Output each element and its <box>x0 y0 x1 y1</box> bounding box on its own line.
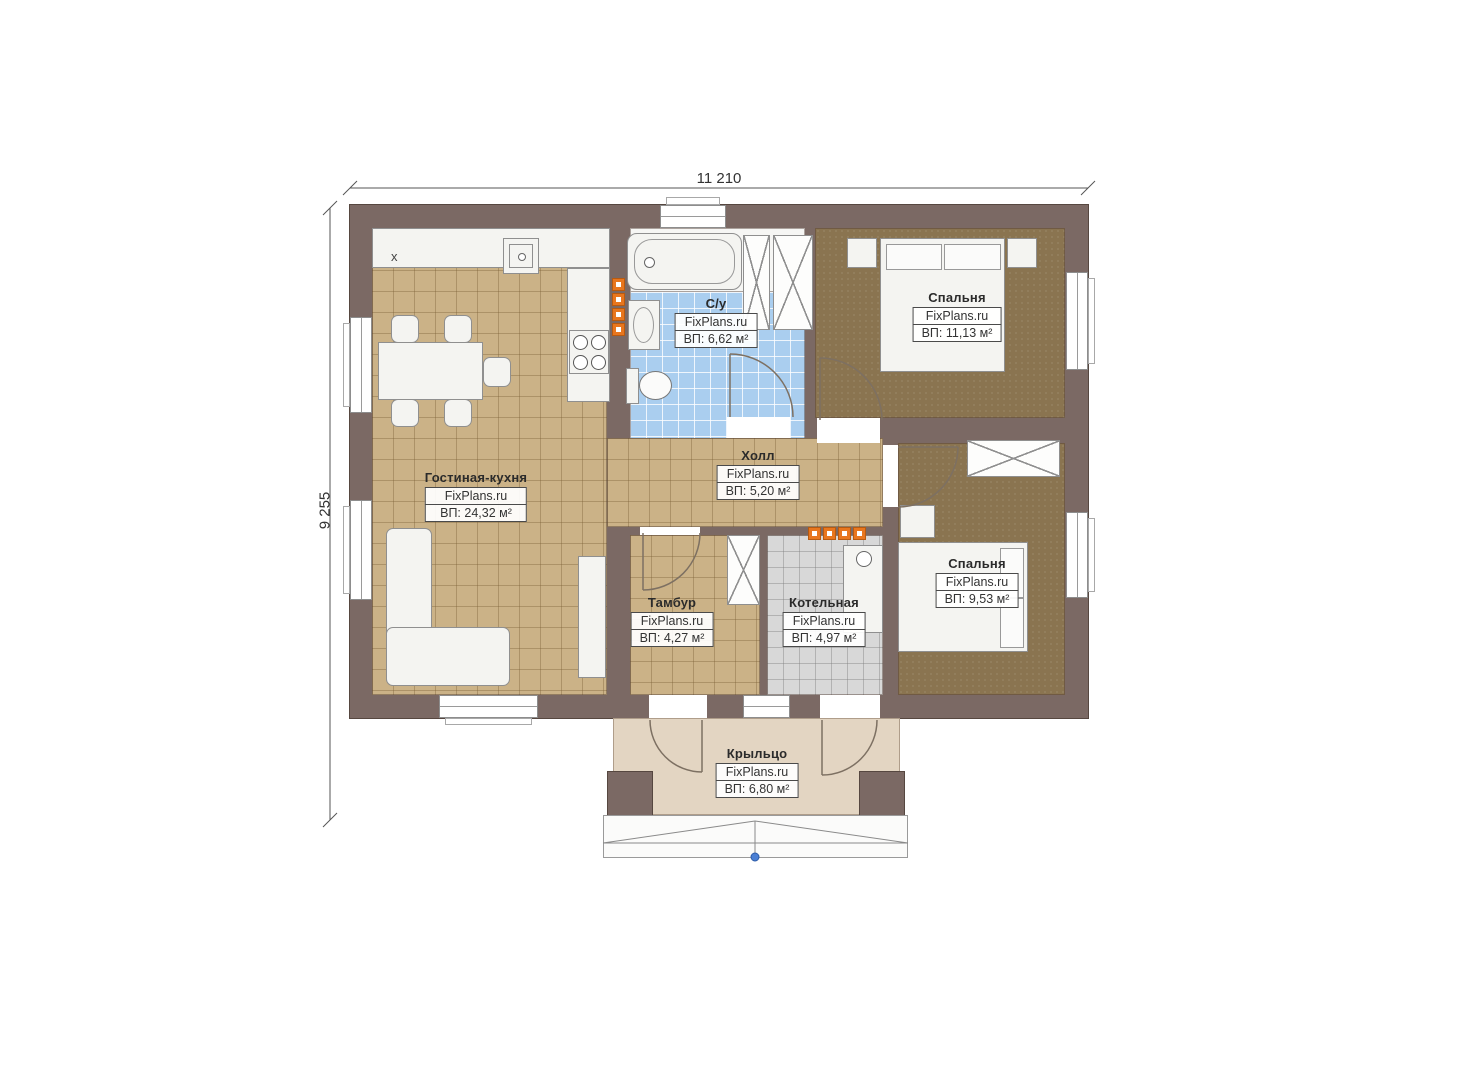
fridge-mark: х <box>391 249 398 264</box>
wardrobe-icon <box>967 440 1060 477</box>
window-sill-left-2 <box>343 506 350 594</box>
room-name: С/у <box>675 296 758 311</box>
nightstand <box>847 238 877 268</box>
brand-watermark: FixPlans.ru <box>425 487 527 505</box>
chair <box>391 399 419 427</box>
room-name: Холл <box>717 448 800 463</box>
toilet-icon <box>639 371 672 400</box>
radiator-icon <box>612 308 625 321</box>
chair <box>444 315 472 343</box>
wardrobe-icon <box>727 535 760 605</box>
window-sill-bottom-living <box>445 718 532 725</box>
brand-watermark: FixPlans.ru <box>716 763 799 781</box>
brand-watermark: FixPlans.ru <box>783 612 866 630</box>
window-bottom-living <box>439 695 538 718</box>
chair <box>391 315 419 343</box>
wardrobe-icon <box>773 235 813 330</box>
room-label-bathroom: С/у FixPlans.ru ВП: 6,62 м² <box>675 296 758 348</box>
window-left-1 <box>350 317 372 413</box>
chair <box>483 357 511 387</box>
room-area: ВП: 4,97 м² <box>783 629 866 647</box>
porch-pillar-left <box>608 772 652 818</box>
radiator-icon <box>838 527 851 540</box>
nightstand <box>1007 238 1037 268</box>
room-label-hall: Холл FixPlans.ru ВП: 5,20 м² <box>717 448 800 500</box>
sofa-bottom-section <box>386 627 510 686</box>
porch-door1-opening <box>649 695 707 718</box>
bathroom-door-opening <box>727 417 790 438</box>
room-name: Крыльцо <box>716 746 799 761</box>
room-label-bedroom2: Спальня FixPlans.ru ВП: 9,53 м² <box>936 556 1019 608</box>
radiator-icon <box>823 527 836 540</box>
brand-watermark: FixPlans.ru <box>913 307 1002 325</box>
porch-steps <box>603 815 908 858</box>
radiator-icon <box>612 323 625 336</box>
room-area: ВП: 11,13 м² <box>913 324 1002 342</box>
chair <box>444 399 472 427</box>
window-sill-left-1 <box>343 323 350 407</box>
floor-plan: 11 210 9 255 х <box>0 0 1474 1080</box>
window-bottom-small <box>743 695 790 718</box>
dimension-height-label: 9 255 <box>317 481 334 541</box>
tambour-door-opening <box>640 527 700 535</box>
room-name: Спальня <box>936 556 1019 571</box>
room-area: ВП: 9,53 м² <box>936 590 1019 608</box>
radiator-icon <box>808 527 821 540</box>
dimension-width-label: 11 210 <box>697 170 742 187</box>
brand-watermark: FixPlans.ru <box>717 465 800 483</box>
room-area: ВП: 6,62 м² <box>675 330 758 348</box>
radiator-icon <box>853 527 866 540</box>
room-name: Тамбур <box>631 595 714 610</box>
room-label-living: Гостиная-кухня FixPlans.ru ВП: 24,32 м² <box>425 470 527 522</box>
toilet-tank <box>626 368 639 404</box>
window-sill-top <box>666 197 720 205</box>
room-name: Спальня <box>913 290 1002 305</box>
window-top <box>660 205 726 228</box>
washbasin-bowl <box>633 307 654 343</box>
room-area: ВП: 5,20 м² <box>717 482 800 500</box>
window-sill-right-2 <box>1088 518 1095 592</box>
room-label-bedroom1: Спальня FixPlans.ru ВП: 11,13 м² <box>913 290 1002 342</box>
window-right-1 <box>1066 272 1088 370</box>
dining-table <box>378 342 483 400</box>
porch-pillar-right <box>860 772 904 818</box>
window-left-2 <box>350 500 372 600</box>
window-right-2 <box>1066 512 1088 598</box>
nightstand <box>900 505 935 538</box>
brand-watermark: FixPlans.ru <box>631 612 714 630</box>
bathtub-drain <box>644 257 655 268</box>
room-label-tambour: Тамбур FixPlans.ru ВП: 4,27 м² <box>631 595 714 647</box>
pillow <box>886 244 942 270</box>
room-name: Котельная <box>783 595 866 610</box>
room-label-boiler: Котельная FixPlans.ru ВП: 4,97 м² <box>783 595 866 647</box>
tv-cabinet <box>578 556 606 678</box>
sink-drain <box>518 253 526 261</box>
bedroom2-door-opening <box>883 445 898 507</box>
radiator-icon <box>612 293 625 306</box>
room-name: Гостиная-кухня <box>425 470 527 485</box>
brand-watermark: FixPlans.ru <box>936 573 1019 591</box>
porch-door2-opening <box>820 695 880 718</box>
room-area: ВП: 6,80 м² <box>716 780 799 798</box>
brand-watermark: FixPlans.ru <box>675 313 758 331</box>
bedroom1-door-opening <box>817 418 880 443</box>
kitchen-counter-top <box>372 228 610 268</box>
window-sill-right-1 <box>1088 278 1095 364</box>
boiler-icon <box>856 551 872 567</box>
radiator-icon <box>612 278 625 291</box>
pillow <box>944 244 1001 270</box>
room-label-porch: Крыльцо FixPlans.ru ВП: 6,80 м² <box>716 746 799 798</box>
room-area: ВП: 24,32 м² <box>425 504 527 522</box>
stove-icon <box>569 330 609 374</box>
room-area: ВП: 4,27 м² <box>631 629 714 647</box>
